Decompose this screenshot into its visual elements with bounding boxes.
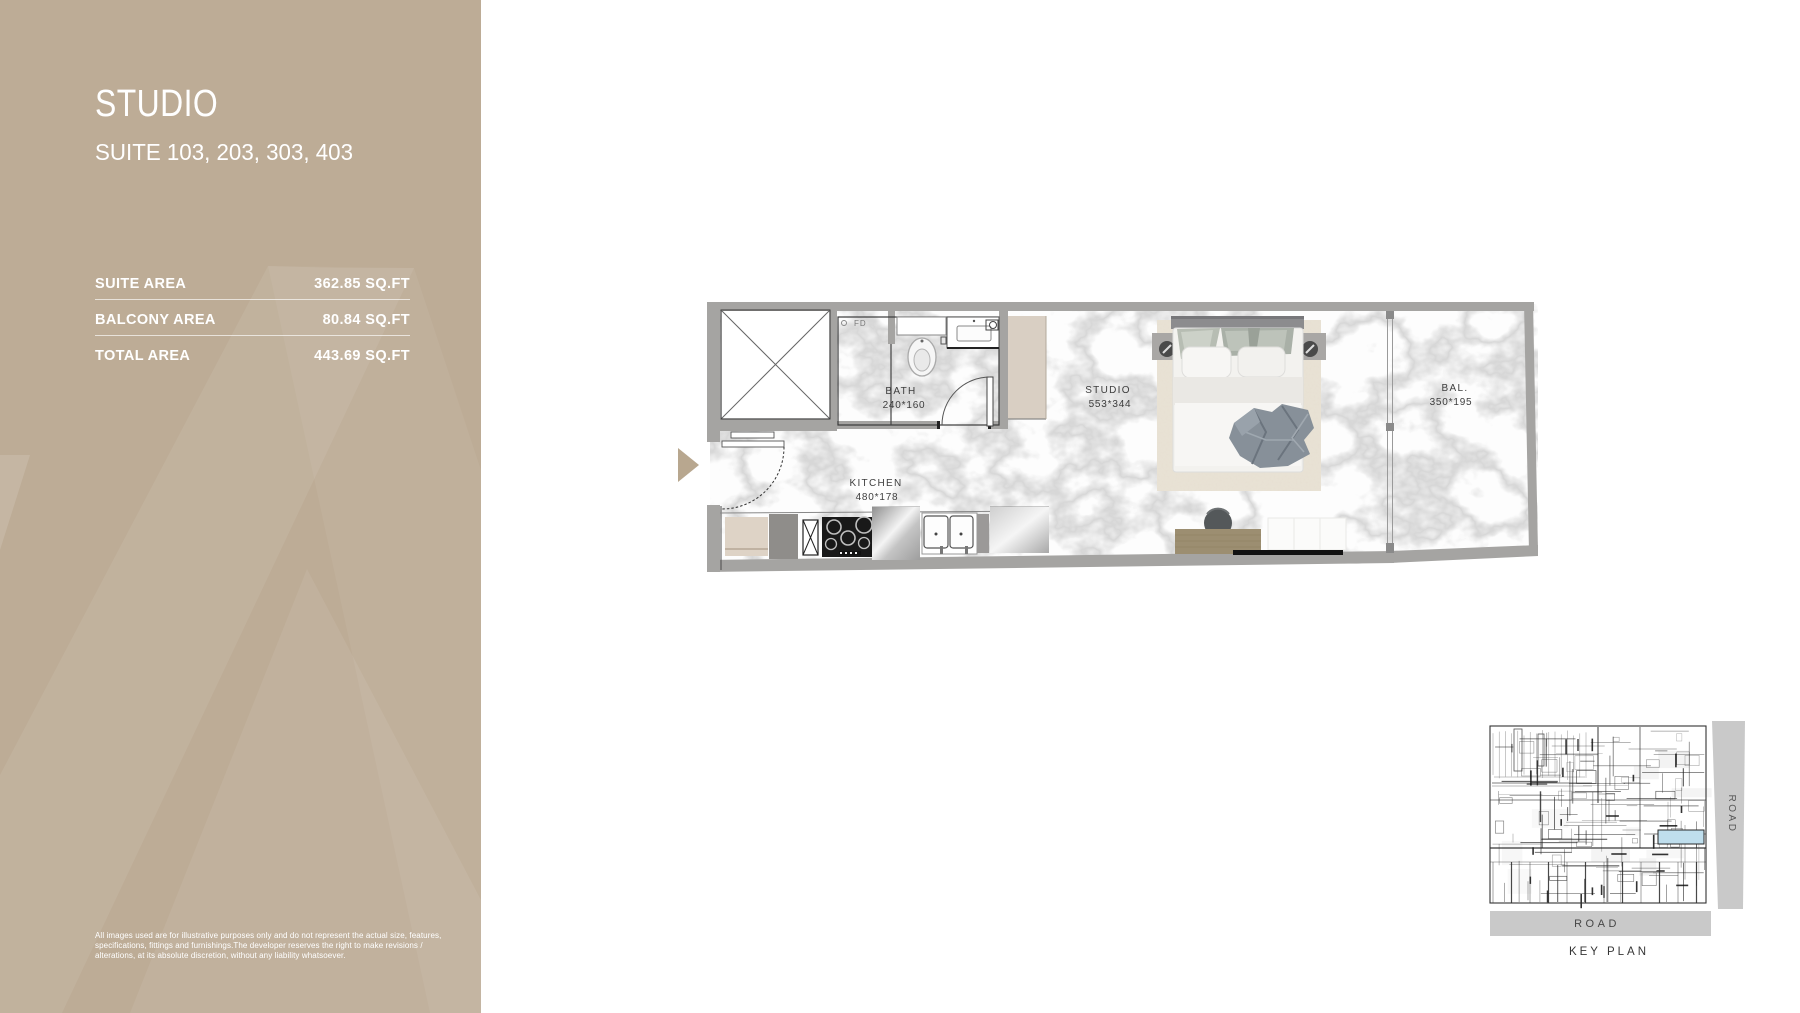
svg-text:ROAD: ROAD (1574, 918, 1620, 930)
svg-text:553*344: 553*344 (1089, 399, 1132, 410)
svg-text:BATH: BATH (885, 386, 916, 397)
svg-text:350*195: 350*195 (1430, 397, 1473, 408)
svg-text:ROAD: ROAD (1726, 795, 1737, 834)
svg-text:KEY PLAN: KEY PLAN (1569, 946, 1649, 958)
svg-text:BAL.: BAL. (1442, 383, 1469, 394)
svg-text:FD: FD (854, 319, 867, 328)
svg-text:KITCHEN: KITCHEN (850, 478, 903, 489)
svg-text:240*160: 240*160 (883, 400, 926, 411)
svg-text:STUDIO: STUDIO (1085, 385, 1131, 396)
svg-text:480*178: 480*178 (856, 492, 899, 503)
